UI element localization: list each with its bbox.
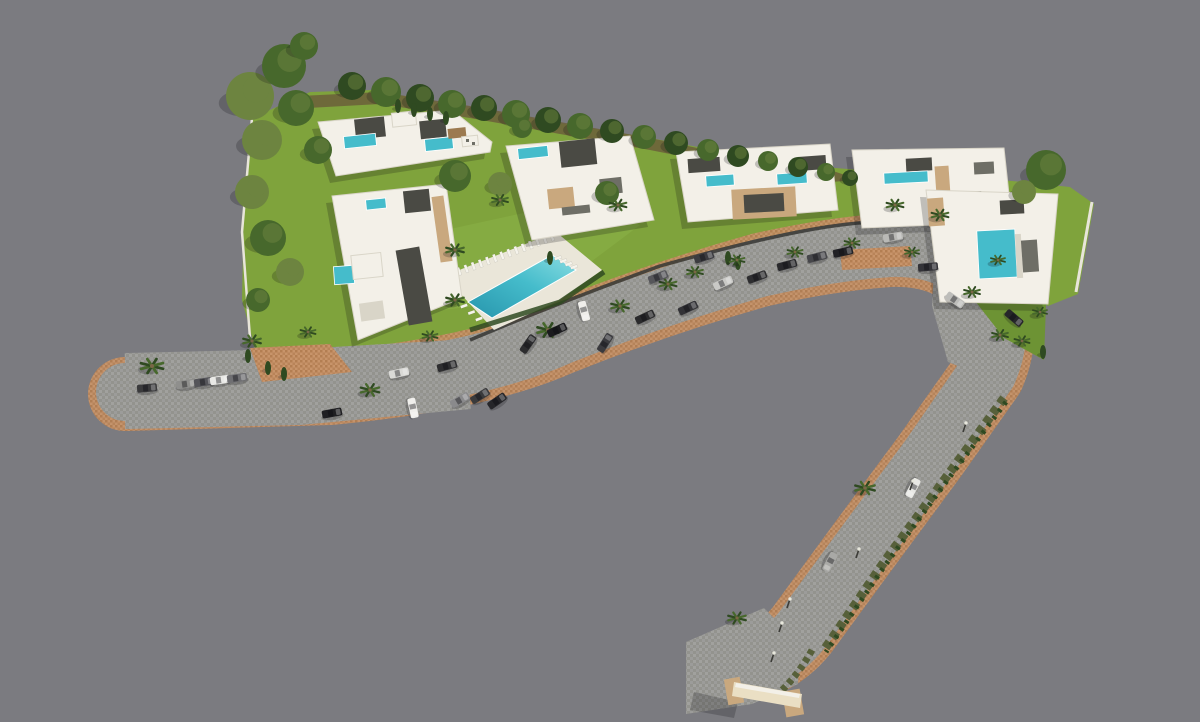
roof-panel xyxy=(472,142,475,145)
palm-crown xyxy=(499,199,502,202)
tree-highlight xyxy=(496,174,509,187)
tree-highlight xyxy=(544,109,558,123)
cypress-body xyxy=(1040,345,1046,359)
tree-highlight xyxy=(382,80,399,97)
lamp-head xyxy=(788,597,791,600)
tree-highlight xyxy=(448,92,463,107)
tree-highlight xyxy=(672,133,685,146)
palm-crown xyxy=(307,331,310,334)
site-plan-render xyxy=(0,0,1200,722)
roof-panel xyxy=(403,189,431,214)
rooftop-pool xyxy=(706,174,735,187)
roof-panel xyxy=(559,138,598,168)
tree-highlight xyxy=(348,74,363,89)
tree-highlight xyxy=(256,123,278,145)
car-windshield xyxy=(200,379,206,386)
palm-crown xyxy=(999,334,1002,337)
cypress-body xyxy=(427,107,433,121)
car-hood xyxy=(932,263,937,269)
palm-crown xyxy=(618,304,621,307)
palm-crown xyxy=(616,203,619,206)
car-windshield xyxy=(233,375,239,382)
tree-highlight xyxy=(735,147,747,159)
palm-crown xyxy=(666,282,669,285)
cypress-body xyxy=(245,349,251,363)
rooftop-pool xyxy=(884,171,929,184)
palm-crown xyxy=(368,388,371,391)
roof-panel xyxy=(462,135,479,147)
tree-highlight xyxy=(1040,153,1062,175)
car-windshield xyxy=(143,385,149,392)
tree-highlight xyxy=(519,120,530,131)
palm-crown xyxy=(735,616,738,619)
tree-highlight xyxy=(480,97,494,111)
tree-highlight xyxy=(254,290,267,303)
palm-crown xyxy=(851,242,854,245)
tree-highlight xyxy=(300,34,315,49)
tree-highlight xyxy=(416,86,431,101)
tree-highlight xyxy=(705,141,717,153)
tree-highlight xyxy=(765,153,776,164)
palm-crown xyxy=(250,339,253,342)
palm-crown xyxy=(429,335,432,338)
palm-crown xyxy=(938,213,941,216)
cypress-body xyxy=(443,111,449,125)
palm-crown xyxy=(694,271,697,274)
tree-highlight xyxy=(450,163,468,181)
roof-panel xyxy=(906,157,933,171)
palm-crown xyxy=(1039,311,1042,314)
villa-southeast-corner xyxy=(920,190,1058,311)
tree-highlight xyxy=(795,159,806,170)
palm-crown xyxy=(736,259,739,262)
tree-highlight xyxy=(640,127,653,140)
tree-highlight xyxy=(286,260,301,275)
car-hood xyxy=(241,374,246,381)
villa-mid-east xyxy=(670,144,838,229)
palm-crown xyxy=(863,486,867,490)
rooftop-pool xyxy=(366,198,387,210)
palm-crown xyxy=(150,364,154,368)
palm-crown xyxy=(911,251,914,254)
roof-panel xyxy=(466,139,469,142)
cypress-body xyxy=(281,367,287,381)
roof-panel xyxy=(1021,239,1039,272)
roof-panel xyxy=(359,300,385,321)
tree-highlight xyxy=(823,165,833,175)
palm-crown xyxy=(794,251,797,254)
roof-panel xyxy=(351,252,383,279)
tree-highlight xyxy=(603,183,616,196)
car-windshield xyxy=(216,377,222,384)
lamp-head xyxy=(857,547,860,550)
cypress-body xyxy=(395,99,401,113)
tree-highlight xyxy=(608,121,621,134)
tree-highlight xyxy=(263,223,283,243)
palm-crown xyxy=(893,203,896,206)
site-plan-canvas xyxy=(0,0,1200,722)
car-windshield xyxy=(924,264,930,271)
tree-highlight xyxy=(247,178,266,197)
tree-highlight xyxy=(576,115,590,129)
roof-panel xyxy=(744,193,785,213)
car-windshield xyxy=(182,381,188,388)
roof-panel xyxy=(974,161,995,174)
cypress-body xyxy=(265,361,271,375)
cypress-body xyxy=(547,251,553,265)
car-hood xyxy=(151,384,156,390)
palm-crown xyxy=(971,291,974,294)
palm-crown xyxy=(997,259,1000,262)
lamp-head xyxy=(911,479,914,482)
palm-crown xyxy=(453,298,456,301)
tree-highlight xyxy=(848,171,857,180)
rooftop-pool xyxy=(333,265,354,284)
lamp-head xyxy=(772,651,775,654)
tree-highlight xyxy=(512,102,527,117)
tree-highlight xyxy=(291,93,311,113)
palm-crown xyxy=(1021,340,1024,343)
roof-panel xyxy=(547,187,575,210)
palm-crown xyxy=(453,248,456,251)
tree-highlight xyxy=(314,138,329,153)
rooftop-pool xyxy=(977,229,1017,279)
cypress-body xyxy=(411,103,417,117)
tree-highlight xyxy=(1020,182,1033,195)
lamp-head xyxy=(780,621,783,624)
lamp-head xyxy=(964,421,967,424)
